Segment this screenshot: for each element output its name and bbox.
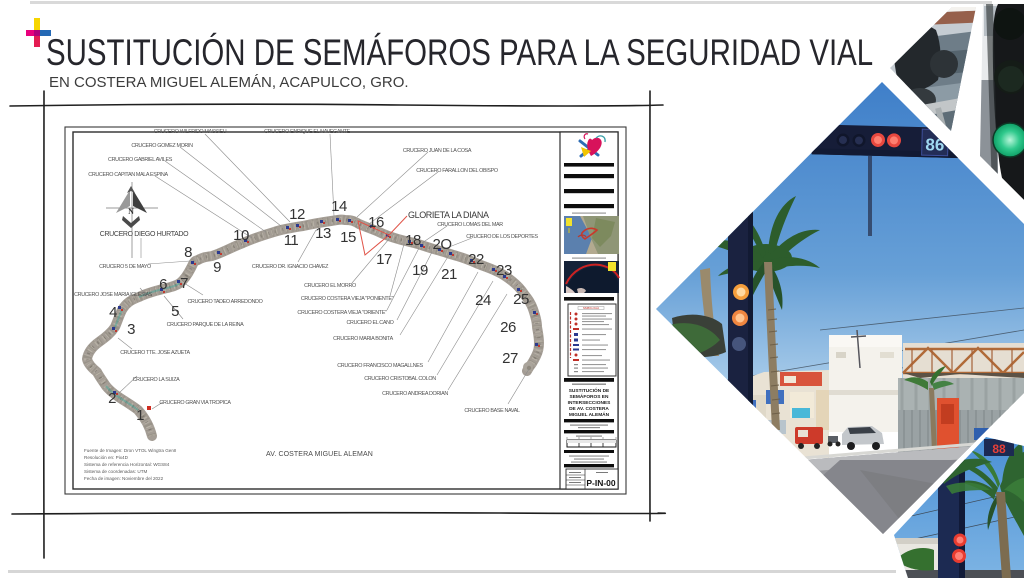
svg-text:9: 9: [213, 259, 221, 276]
svg-text:CRUCERO BASE NAVAL: CRUCERO BASE NAVAL: [464, 408, 520, 414]
svg-text:7: 7: [180, 275, 188, 292]
svg-text:P-IN-00: P-IN-00: [586, 478, 616, 488]
svg-text:SIMBOLOGÍA: SIMBOLOGÍA: [583, 306, 600, 310]
svg-text:2: 2: [108, 390, 116, 407]
svg-text:Fecha de imagen: Noviembre del: Fecha de imagen: Noviembre del 2022: [84, 476, 164, 481]
svg-text:24: 24: [475, 292, 491, 309]
svg-text:CRUCERO FRANCISCO MAGALLNES: CRUCERO FRANCISCO MAGALLNES: [337, 363, 423, 369]
svg-text:CRUCERO PARQUE DE LA REINA: CRUCERO PARQUE DE LA REINA: [167, 322, 245, 328]
svg-text:CRUCERO LA SUIZA: CRUCERO LA SUIZA: [133, 377, 181, 383]
svg-text:AV. COSTERA MIGUEL ALEMAN: AV. COSTERA MIGUEL ALEMAN: [266, 451, 373, 458]
svg-text:13: 13: [315, 225, 331, 242]
svg-text:3: 3: [127, 321, 135, 338]
svg-text:CRUCERO JOSE MARIA IGLESIAS: CRUCERO JOSE MARIA IGLESIAS: [74, 292, 152, 298]
svg-text:86: 86: [925, 135, 944, 154]
svg-text:INTERSECCIONES: INTERSECCIONES: [568, 400, 611, 406]
svg-text:15: 15: [340, 229, 356, 246]
svg-text:8: 8: [184, 244, 192, 261]
svg-text:16: 16: [368, 214, 384, 231]
svg-text:1: 1: [136, 407, 144, 424]
svg-text:DE AV. COSTERA: DE AV. COSTERA: [569, 406, 609, 412]
svg-text:CRUCERO DR. IGNACIO CHAVEZ: CRUCERO DR. IGNACIO CHAVEZ: [252, 264, 329, 270]
svg-text:23: 23: [496, 262, 512, 279]
svg-text:11: 11: [284, 232, 299, 249]
svg-text:25: 25: [513, 291, 529, 308]
svg-text:18: 18: [405, 232, 421, 249]
svg-text:17: 17: [376, 251, 392, 268]
svg-text:N: N: [128, 207, 134, 216]
svg-text:MIGUEL ALEMÁN: MIGUEL ALEMÁN: [569, 411, 610, 418]
svg-text:SEMÁFOROS EN: SEMÁFOROS EN: [570, 393, 609, 400]
svg-text:Fuente de Imagen: Dron VTOL Wi: Fuente de Imagen: Dron VTOL Wingtra GenI…: [84, 448, 176, 453]
svg-text:22: 22: [468, 251, 484, 268]
svg-text:88: 88: [992, 442, 1006, 456]
svg-text:CRUCERO CAPITAN MALA ESPINA: CRUCERO CAPITAN MALA ESPINA: [88, 172, 168, 178]
svg-text:GLORIETA LA DIANA: GLORIETA LA DIANA: [408, 210, 489, 220]
svg-text:CRUCERO ENRIQUE EL NAVEGANTE: CRUCERO ENRIQUE EL NAVEGANTE: [264, 129, 351, 135]
svg-text:Sistema de referencia Horizont: Sistema de referencia Horizontal: WGS84: [84, 462, 170, 467]
svg-text:10: 10: [233, 227, 249, 244]
svg-text:6: 6: [159, 276, 167, 293]
svg-text:CRUCERO COSTERA VIEJA "PONIENT: CRUCERO COSTERA VIEJA "PONIENTE": [301, 296, 394, 302]
svg-text:CRUCERO DIEGO HURTADO: CRUCERO DIEGO HURTADO: [100, 231, 189, 238]
svg-text:19: 19: [412, 262, 428, 279]
svg-text:CRUCERO TADEO ARREDONDO: CRUCERO TADEO ARREDONDO: [187, 299, 262, 305]
svg-text:5: 5: [171, 303, 179, 320]
svg-text:CRUCERO 5 DE MAYO: CRUCERO 5 DE MAYO: [99, 264, 151, 270]
svg-text:CRUCERO GABRIEL AVILES: CRUCERO GABRIEL AVILES: [108, 157, 173, 163]
svg-text:Resolución en: Pix4D: Resolución en: Pix4D: [84, 455, 129, 460]
svg-text:CRUCERO FARALLON DEL OBISPO: CRUCERO FARALLON DEL OBISPO: [416, 168, 498, 174]
svg-text:12: 12: [289, 206, 305, 223]
svg-text:Sistema de coordenadas: UTM: Sistema de coordenadas: UTM: [84, 469, 147, 474]
svg-text:4: 4: [109, 304, 117, 321]
svg-text:CRUCERO EL MORRO: CRUCERO EL MORRO: [304, 283, 356, 289]
svg-text:27: 27: [502, 350, 518, 367]
svg-text:CRUCERO LOMAS DEL MAR: CRUCERO LOMAS DEL MAR: [437, 222, 503, 228]
svg-text:CRUCERO GOMEZ MORIN: CRUCERO GOMEZ MORIN: [131, 143, 193, 149]
svg-text:CRUCERO TTE. JOSE AZUETA: CRUCERO TTE. JOSE AZUETA: [120, 350, 190, 356]
svg-text:CRUCERO CRISTOBAL COLON: CRUCERO CRISTOBAL COLON: [364, 376, 436, 382]
svg-text:CRUCERO COSTERA VIEJA "ORIENTE: CRUCERO COSTERA VIEJA "ORIENTE": [297, 310, 387, 316]
svg-text:CRUCERO GRAN VIA TROPICA: CRUCERO GRAN VIA TROPICA: [159, 400, 231, 406]
svg-text:21: 21: [441, 266, 457, 283]
svg-text:CRUCERO ANDREA DORIAN: CRUCERO ANDREA DORIAN: [382, 391, 448, 397]
svg-text:CRUCERO WILFRIDO MASSIEU: CRUCERO WILFRIDO MASSIEU: [154, 129, 227, 135]
svg-text:CRUCERO MARIA BONITA: CRUCERO MARIA BONITA: [333, 336, 393, 342]
svg-text:CRUCERO JUAN DE LA COSA: CRUCERO JUAN DE LA COSA: [403, 148, 472, 154]
svg-text:26: 26: [500, 319, 516, 336]
svg-text:2O: 2O: [432, 236, 451, 253]
svg-text:CRUCERO EL CANO: CRUCERO EL CANO: [347, 320, 394, 326]
svg-text:14: 14: [331, 198, 347, 215]
svg-text:CRUCERO DE LOS DEPORTES: CRUCERO DE LOS DEPORTES: [466, 234, 538, 240]
